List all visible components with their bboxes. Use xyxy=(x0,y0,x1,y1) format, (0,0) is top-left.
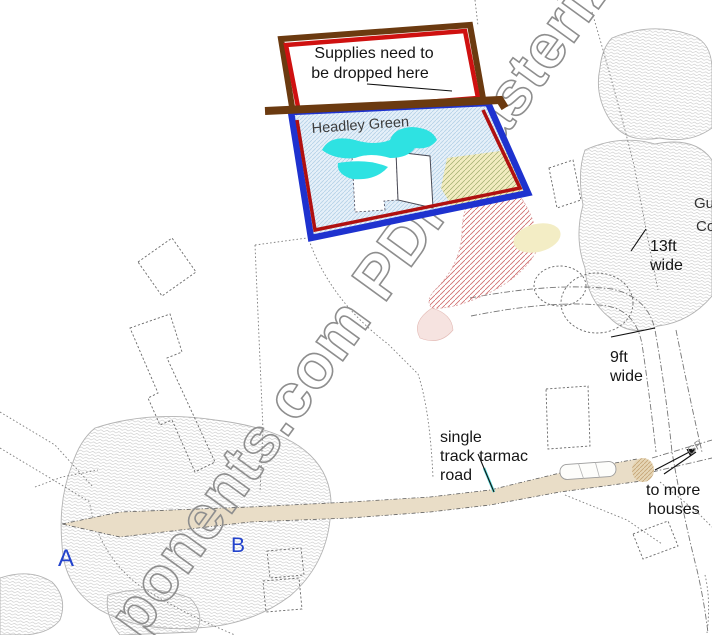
map-canvas: ponents.com PDF Rasteriz Supplies need t… xyxy=(0,0,712,635)
point-b-label: B xyxy=(231,534,245,557)
to-more-houses-line1: to more xyxy=(646,482,700,499)
tree-canopy xyxy=(0,574,63,635)
boundary-line xyxy=(705,575,709,633)
tree-canopy xyxy=(579,140,712,330)
single-track-line3: road xyxy=(440,467,472,484)
tree-canopy xyxy=(598,29,712,140)
boundary-line xyxy=(255,238,307,245)
building-outline xyxy=(549,160,581,208)
lane-edge xyxy=(676,330,702,452)
pale-pink-area xyxy=(417,308,453,341)
width-13-line2: wide xyxy=(649,257,683,274)
building-outline xyxy=(633,521,678,559)
width-9-line1: 9ft xyxy=(610,349,628,366)
single-track-line2: track tarmac xyxy=(440,448,528,465)
boundary-line xyxy=(475,0,478,26)
building-outline xyxy=(546,386,590,449)
annotated-site-map: ponents.com PDF Rasteriz Supplies need t… xyxy=(0,0,712,635)
width-13-line1: 13ft xyxy=(650,238,677,255)
tree-area-top-right xyxy=(579,29,712,331)
guide-post-label: GP xyxy=(685,438,705,458)
supplies-note-line2: be dropped here xyxy=(311,65,429,82)
lane-edge xyxy=(652,458,712,472)
point-a-label: A xyxy=(58,545,74,572)
building-outline xyxy=(138,238,196,296)
supplies-note-line1: Supplies need to xyxy=(314,45,433,62)
edge-label-co: Co xyxy=(696,218,712,235)
single-track-line1: single xyxy=(440,429,482,446)
tree-outline xyxy=(534,266,586,306)
road-end-bulb xyxy=(632,458,654,482)
width-9-line2: wide xyxy=(609,368,643,385)
to-more-houses-line2: houses xyxy=(648,501,700,518)
edge-label-gu: Gu xyxy=(694,195,712,212)
